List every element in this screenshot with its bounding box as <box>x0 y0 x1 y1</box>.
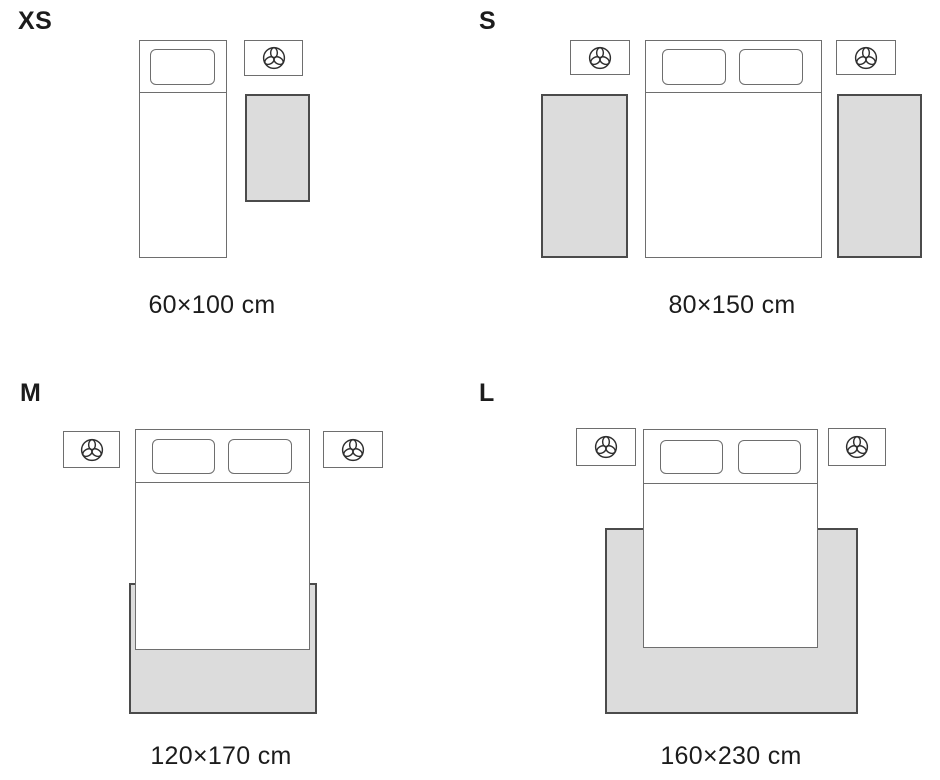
pillow <box>228 439 292 474</box>
double-bed <box>643 429 818 648</box>
nightstand <box>836 40 896 75</box>
panel-xs-size-label: XS <box>18 9 52 34</box>
rug-s-left <box>541 94 628 258</box>
bed-headboard <box>136 430 309 483</box>
double-bed <box>645 40 822 258</box>
pillow <box>150 49 215 85</box>
bed-headboard <box>140 41 226 93</box>
plant-icon <box>841 431 873 463</box>
pillow <box>739 49 803 85</box>
plant-icon <box>850 42 882 74</box>
rug-size-guide: XS 60×100 cm S <box>0 0 940 780</box>
bed-headboard <box>646 41 821 93</box>
plant-icon <box>76 434 108 466</box>
panel-l-size-label: L <box>479 381 495 406</box>
nightstand <box>63 431 120 468</box>
nightstand <box>828 428 886 466</box>
plant-icon <box>590 431 622 463</box>
rug-xs <box>245 94 310 202</box>
pillow <box>660 440 723 474</box>
double-bed <box>135 429 310 650</box>
plant-icon <box>337 434 369 466</box>
pillow <box>738 440 801 474</box>
nightstand <box>244 40 303 76</box>
pillow <box>662 49 726 85</box>
panel-l-caption: 160×230 cm <box>611 744 851 769</box>
nightstand <box>576 428 636 466</box>
panel-s-caption: 80×150 cm <box>612 293 852 318</box>
nightstand <box>570 40 630 75</box>
plant-icon <box>584 42 616 74</box>
panel-m-caption: 120×170 cm <box>101 744 341 769</box>
pillow <box>152 439 215 474</box>
plant-icon <box>258 42 290 74</box>
panel-s-size-label: S <box>479 9 496 34</box>
rug-s-right <box>837 94 922 258</box>
panel-xs-caption: 60×100 cm <box>92 293 332 318</box>
nightstand <box>323 431 383 468</box>
panel-m-size-label: M <box>20 381 41 406</box>
single-bed <box>139 40 227 258</box>
bed-headboard <box>644 430 817 484</box>
